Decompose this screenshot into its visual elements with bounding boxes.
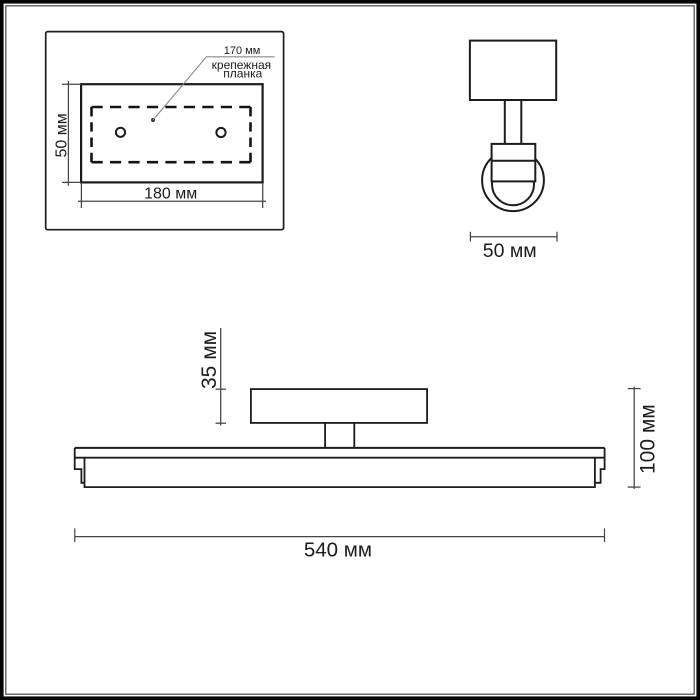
svg-text:планка: планка [223, 67, 262, 81]
svg-text:540 мм: 540 мм [304, 539, 372, 562]
svg-text:35 мм: 35 мм [198, 331, 221, 389]
svg-text:100 мм: 100 мм [637, 404, 660, 474]
svg-text:170 мм: 170 мм [224, 45, 261, 57]
svg-text:50 мм: 50 мм [53, 113, 70, 157]
svg-text:180 мм: 180 мм [144, 186, 197, 203]
svg-text:50 мм: 50 мм [483, 240, 537, 262]
